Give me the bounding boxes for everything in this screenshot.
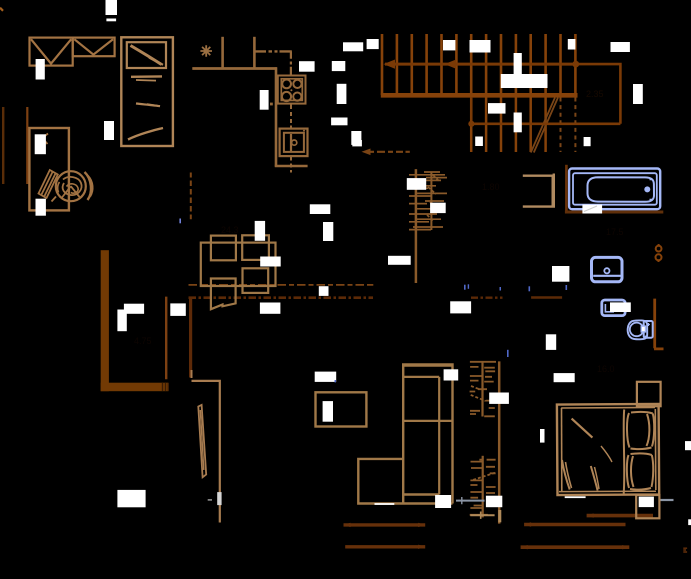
svg-text:17.5: 17.5 (606, 227, 624, 237)
svg-text:2.35: 2.35 (586, 89, 604, 99)
svg-text:16.0: 16.0 (597, 364, 615, 374)
svg-text:4.75: 4.75 (134, 336, 152, 346)
svg-text:24.3: 24.3 (221, 225, 239, 235)
svg-text:1.80: 1.80 (482, 182, 500, 192)
